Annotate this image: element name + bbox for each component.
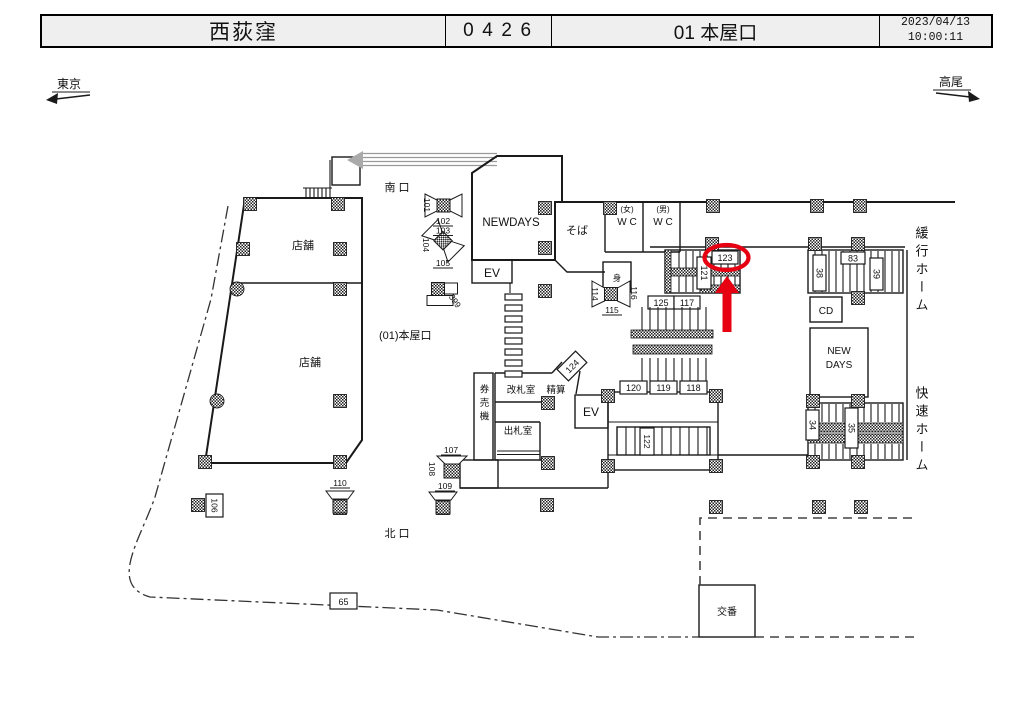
ev-north-label: EV [484,266,500,280]
arrow-left-icon [46,93,58,104]
number-120: 120 [626,383,641,393]
south-exit-label: 南 口 [384,181,409,194]
main-gate-label: (01)本屋口 [379,328,432,342]
number-110: 110 [333,478,347,488]
number-118: 118 [686,383,700,393]
wc-men-label: W C [653,217,672,228]
direction-tokyo-label: 東京 [57,77,81,91]
number-102: 102 [436,216,450,226]
number-399: 399 [447,292,463,310]
center-stair-hall: 122 [608,392,718,470]
store-building: 店舗 店舗 [205,198,362,463]
platform-rapid-label: 快速ホーム [914,386,929,476]
floor-plan: 東京 高尾 南 口 店舗 店舗 [0,0,1024,724]
ev-center-label: EV [583,405,599,419]
local-platform-stairs: 38 83 39 [808,250,903,293]
north-exit-label: 北 口 [384,527,409,540]
speaker-110 [326,491,354,513]
newdays2-line1: NEW [827,346,851,357]
number-83: 83 [848,254,858,264]
number-39: 39 [872,269,882,279]
number-34: 34 [808,420,818,430]
number-116: 116 [629,286,639,300]
fare-adjust-label: 精算 [546,384,565,396]
direction-tokyo: 東京 [46,77,90,104]
ticket-office-block: 券売機 改札室 精算 出札室 124 [474,351,587,460]
direction-takao: 高尾 [933,74,980,102]
number-119: 119 [656,383,670,393]
number-117: 117 [680,298,694,308]
newdays-label: NEWDAYS [482,217,540,229]
number-35: 35 [847,423,857,433]
number-104: 104 [421,238,431,252]
number-108: 108 [427,462,437,476]
gate-office-label: 改札室 [507,384,536,396]
police-box: 交番 [699,585,755,637]
number-121: 121 [699,265,709,280]
newdays-platform-shop: NEW DAYS [810,328,868,397]
station-map-page: 西荻窪 0426 01 本屋口 2023/04/13 10:00:11 東京 高… [0,0,1024,724]
store-upper-label: 店舗 [292,238,314,252]
number-114: 114 [590,287,600,301]
direction-takao-label: 高尾 [939,74,963,89]
number-107: 107 [444,445,458,455]
marker-65: 65 [330,593,357,609]
number-103: 103 [436,226,450,236]
soba-label: そば [566,224,588,237]
number-101: 101 [422,198,432,212]
wc-women-label: W C [617,217,636,228]
number-109: 109 [438,481,452,491]
wc-women-tag: (女) [620,204,634,214]
number-106: 106 [210,498,220,512]
newdays2-line2: DAYS [826,360,853,371]
soba-shop: そば [566,224,588,237]
speaker-109 [429,492,457,514]
wc-men-tag: (男) [656,205,670,214]
number-122: 122 [642,434,652,448]
police-box-label: 交番 [717,605,737,618]
number-125: 125 [653,298,668,308]
number-115: 115 [605,305,619,315]
rapid-platform-stairs: 34 35 [806,403,903,460]
store-lower-label: 店舗 [299,355,321,369]
gate-124: 124 [557,351,587,381]
number-123: 123 [717,253,732,263]
ticket-office-label: 出札室 [504,425,533,437]
number-65: 65 [338,597,348,607]
ticket-gates [505,294,522,377]
arrow-right-icon [968,91,980,102]
speaker-107 [437,456,467,478]
ticket-machines-label: 券売機 [478,383,490,424]
number-105: 105 [436,258,450,268]
elevator-north: EV [472,260,512,293]
platform-local-label: 緩行ホーム [914,226,929,316]
cd-machine: CD [810,297,842,322]
cd-label: CD [819,306,833,317]
marker-106: 106 [206,494,223,517]
number-38: 38 [815,268,825,278]
boundary-dashed [700,518,915,637]
escalator-arrow-icon [347,151,363,169]
accessible-toilet-label: 身 [613,273,622,283]
